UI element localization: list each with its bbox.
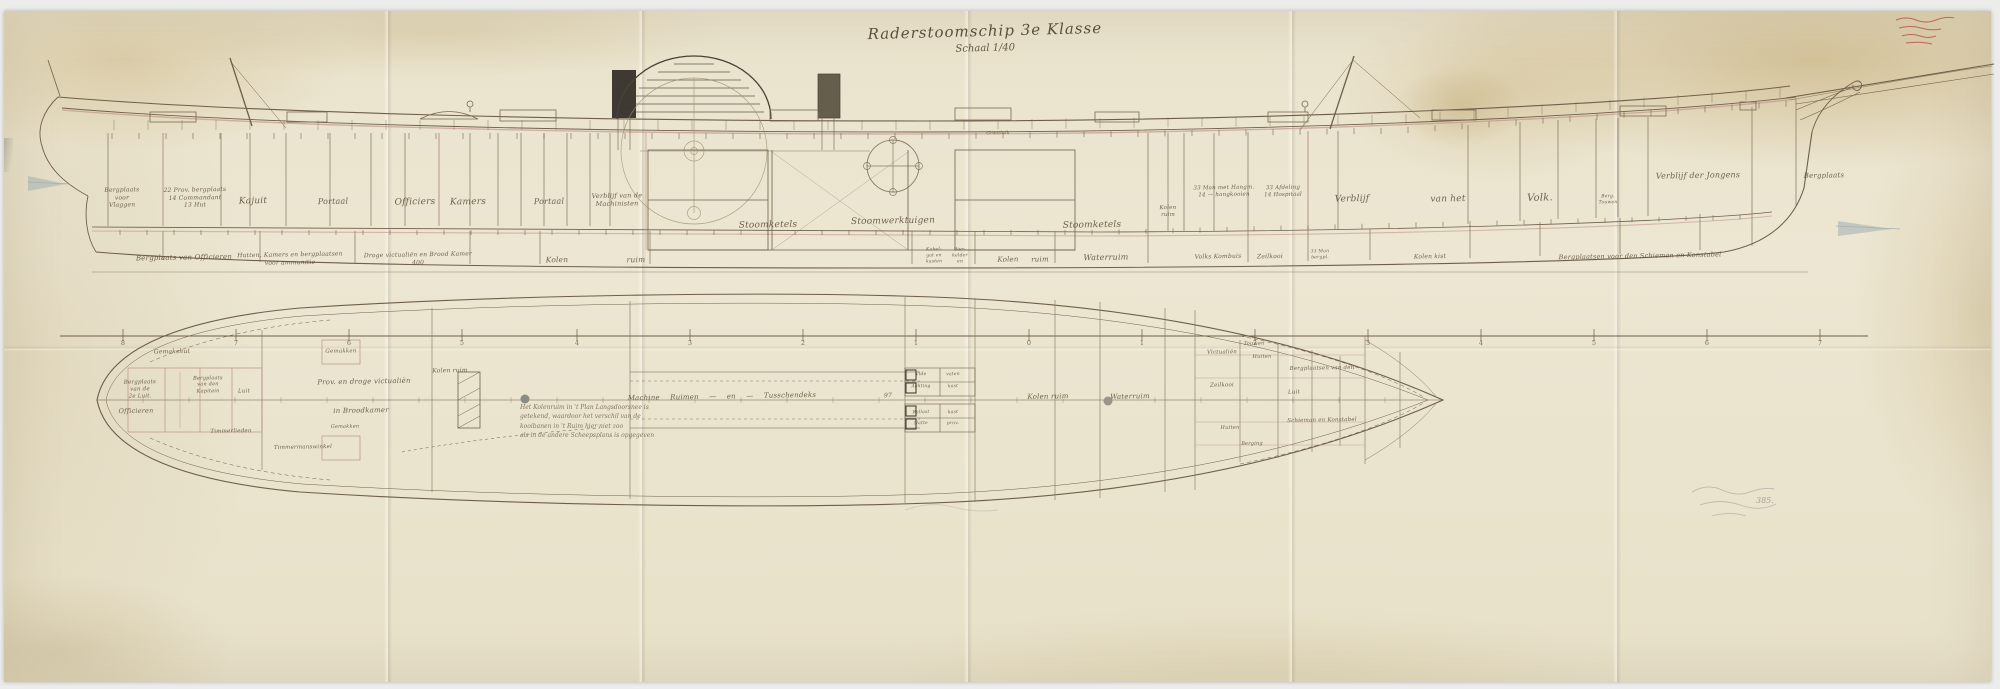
deck-fittings: [150, 101, 1756, 122]
ship-plan-sheet: Raderstoomschip 3e Klasse Schaal 1/40 He…: [0, 0, 2000, 689]
tick-marks: [112, 88, 1820, 403]
storeroom-grid: [1195, 340, 1437, 462]
hold-bulkheads: [163, 210, 1752, 264]
waterline-wash: [28, 176, 1900, 236]
station-line: [60, 272, 1868, 336]
ship-drawing: [0, 0, 2000, 689]
pencil-scribbles: [905, 487, 1776, 516]
mast-step: [521, 395, 530, 404]
hull-profile: [40, 56, 1994, 268]
archive-stamp: [1896, 17, 1954, 44]
hull-plan: [97, 294, 1443, 506]
mast-step: [1104, 397, 1113, 406]
